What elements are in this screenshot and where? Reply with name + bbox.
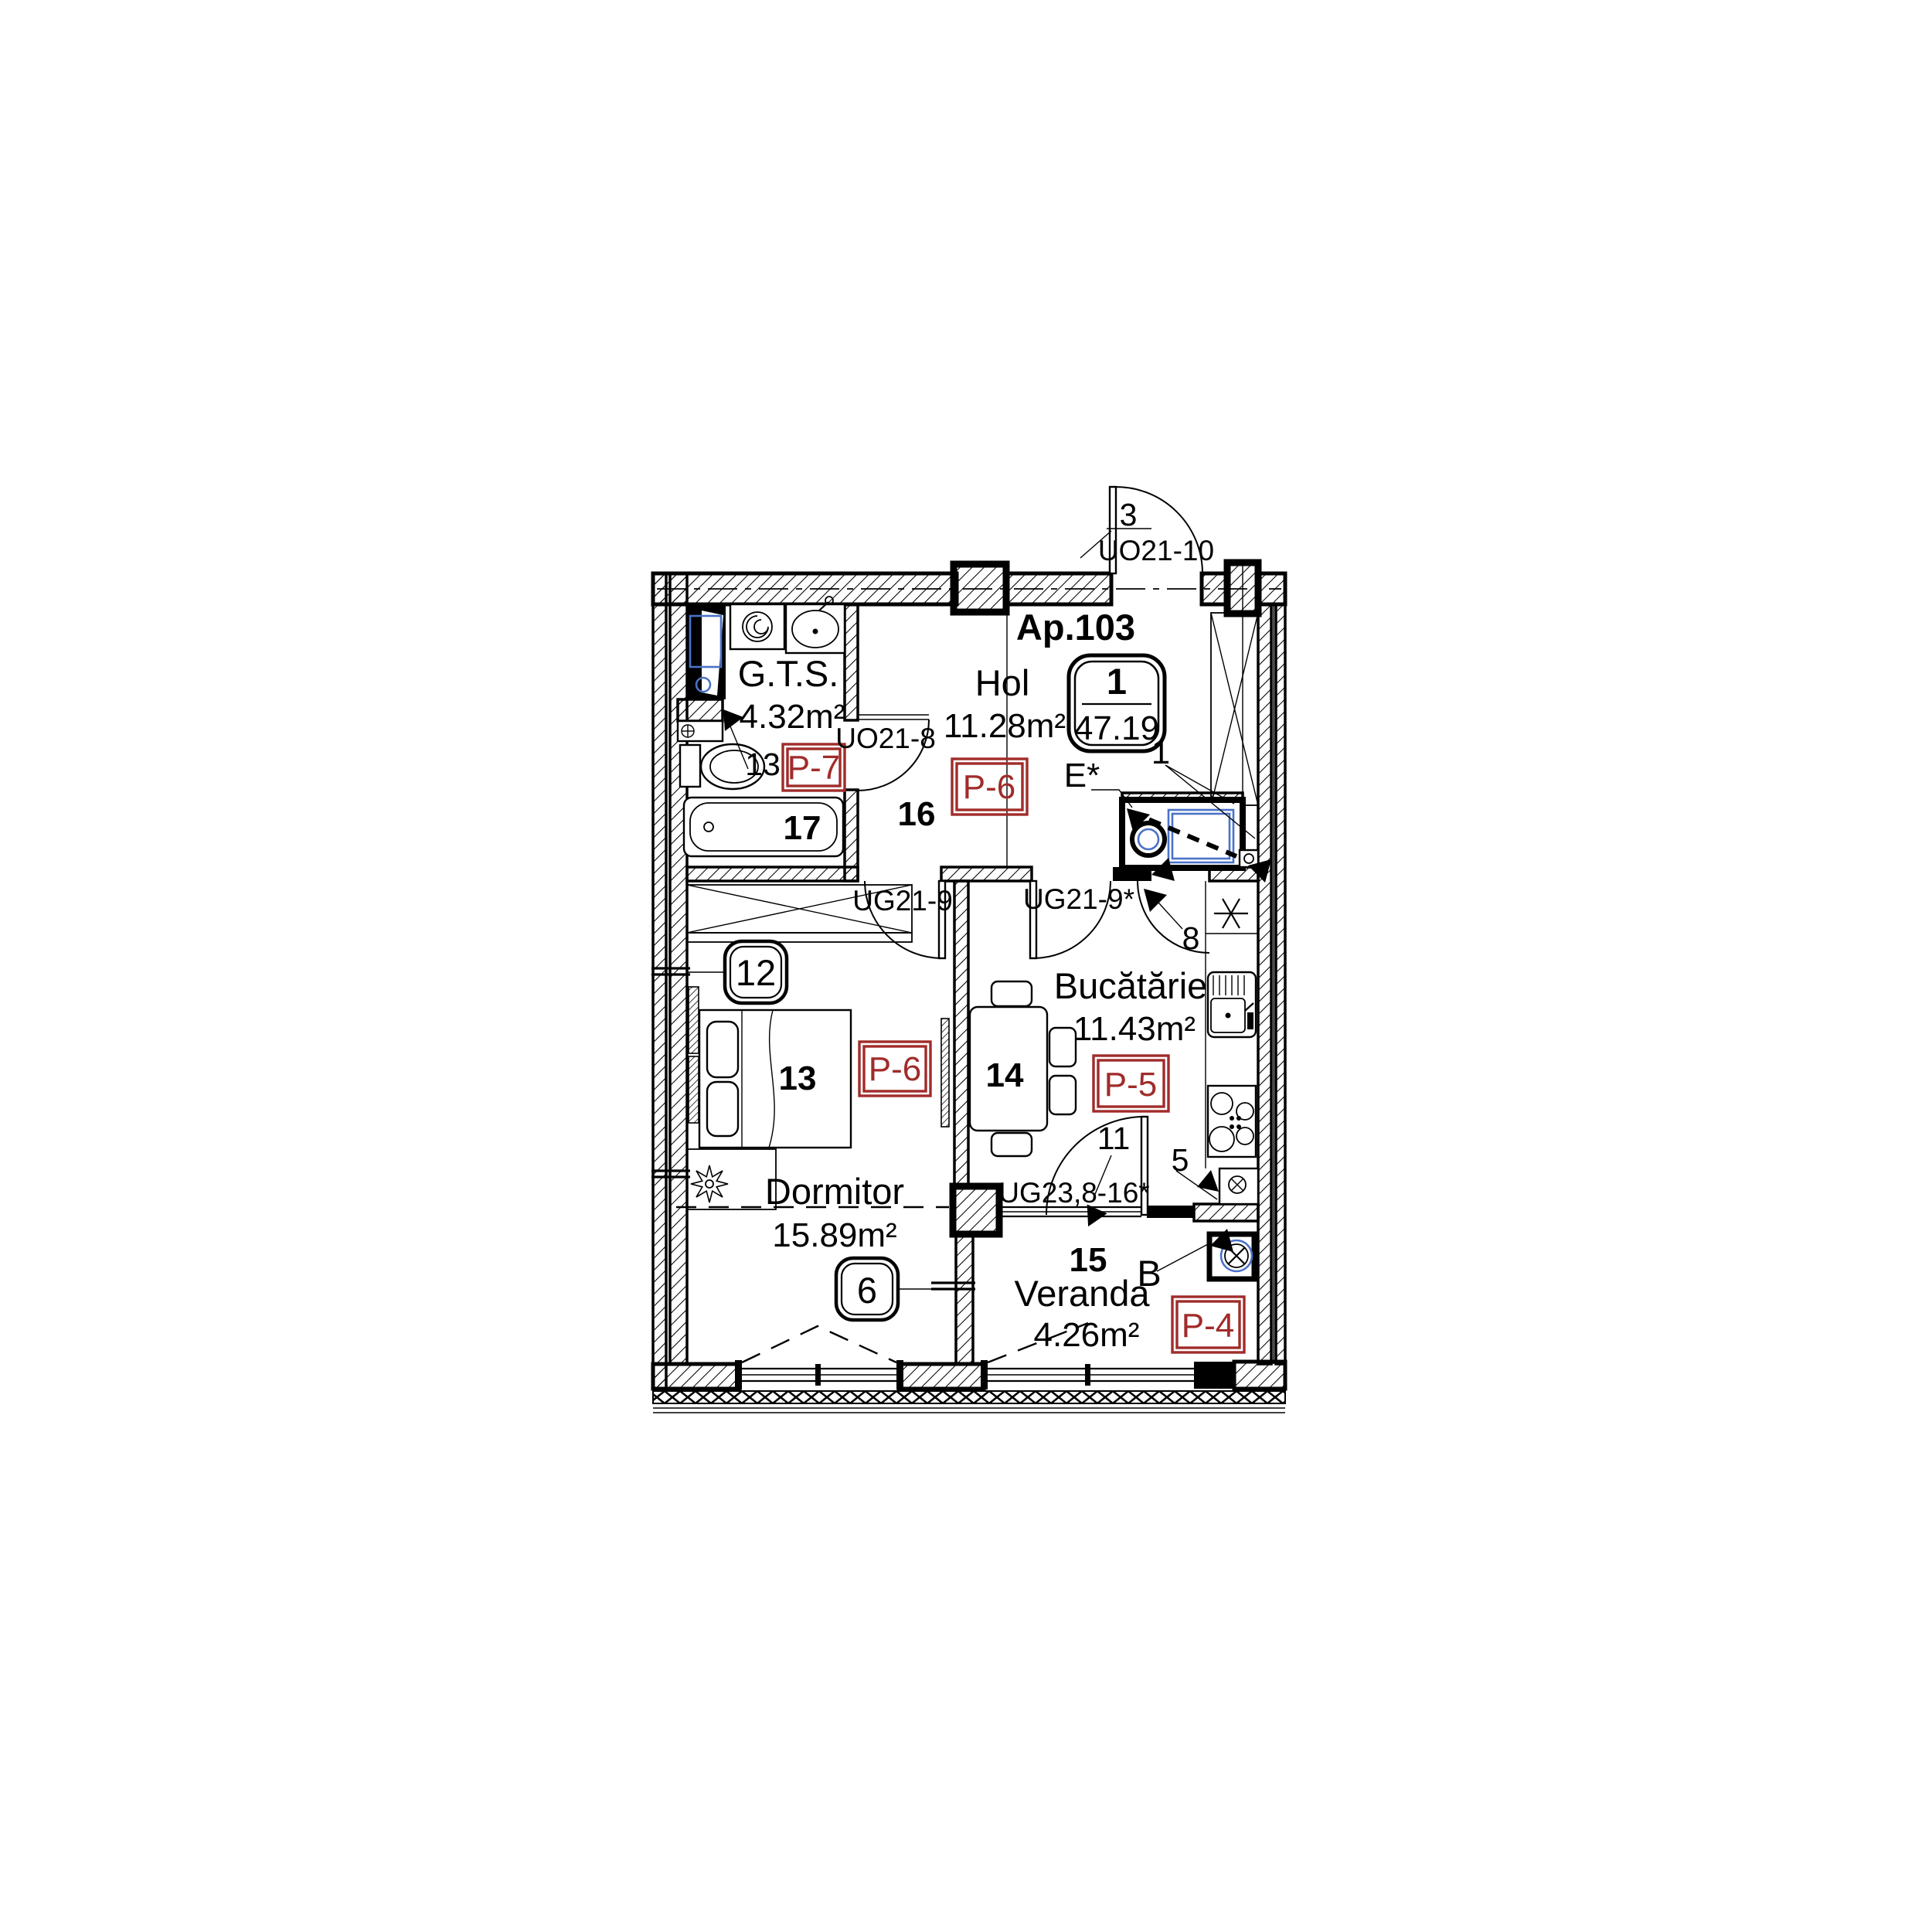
callout-electrical: E* [1064, 757, 1100, 794]
pillow [707, 1082, 738, 1136]
chair [1049, 1028, 1076, 1066]
stove [1208, 1086, 1256, 1157]
pillow [707, 1022, 738, 1077]
finish-code-p6-bedroom: P-6 [869, 1050, 921, 1088]
room-veranda-name: Veranda [1014, 1273, 1150, 1314]
room-bedroom-name: Dormitor [765, 1171, 904, 1212]
opening-kitchen-code: UG21-9* [1023, 883, 1134, 915]
room-bedroom-area: 15.89m² [772, 1216, 896, 1254]
drain-niche [1209, 1229, 1254, 1279]
callout-door-11: 11 [1097, 1121, 1131, 1156]
plant [691, 1165, 728, 1202]
apartment-title: Ap.103 [1016, 607, 1135, 648]
callout-shaft: 13 [745, 747, 781, 782]
floor-plan-canvas: Ap.103 1 47.19 G.T.S. 4.32m² P-7 17 Hol … [0, 0, 1932, 1932]
finish-code-p4: P-4 [1182, 1307, 1234, 1345]
finish-code-p5: P-5 [1104, 1066, 1157, 1104]
headboard-panel [689, 1056, 699, 1123]
room-gts-name: G.T.S. [738, 653, 839, 694]
room-gts-area: 4.32m² [740, 698, 845, 736]
callout-window-6: 6 [857, 1270, 877, 1311]
room-veranda-area: 4.26m² [1034, 1316, 1140, 1354]
room-kitchen-area: 11.43m² [1073, 1010, 1196, 1048]
chair [1049, 1076, 1076, 1114]
washing-machine [730, 604, 784, 649]
floor-plan: Ap.103 1 47.19 G.T.S. 4.32m² P-7 17 Hol … [0, 0, 1932, 1932]
column-top [954, 564, 1006, 612]
chair [992, 981, 1032, 1006]
callout-drain-b: B [1137, 1253, 1161, 1294]
opening-veranda-code: UG23,8-16* [998, 1177, 1149, 1209]
room-hol-area: 11.28m² [944, 707, 1066, 745]
finish-code-p7: P-7 [787, 749, 840, 787]
finish-code-p6-hall: P-6 [963, 768, 1015, 806]
callout-counter-5: 5 [1172, 1142, 1189, 1178]
callout-boiler-1: 1 [1151, 733, 1170, 771]
room-gts-number: 17 [784, 809, 821, 847]
headboard-panel [689, 987, 699, 1053]
callout-entrance-door: 3 [1120, 497, 1138, 532]
callout-kitchen-entry-8: 8 [1182, 920, 1200, 956]
apartment-total-area: 47.19 [1074, 709, 1159, 747]
room-kitchen-number: 14 [986, 1056, 1024, 1094]
radiator [941, 1019, 949, 1127]
room-kitchen-name: Bucătărie [1054, 965, 1208, 1006]
opening-bedroom-code: UG21-9 [852, 885, 953, 917]
opening-entrance-code: UO21-10 [1098, 535, 1214, 566]
kitchen-sink [1208, 972, 1256, 1037]
counter-end-unit [1219, 1168, 1258, 1204]
insulation-strip [653, 1391, 1285, 1403]
pier-kitchen-veranda [953, 1186, 999, 1234]
bed [689, 987, 851, 1148]
sink [786, 597, 845, 653]
room-bedroom-number: 13 [779, 1060, 817, 1097]
room-hol-name: Hol [975, 662, 1030, 703]
apartment-unit-number: 1 [1107, 661, 1127, 702]
chair [992, 1133, 1032, 1156]
veranda-elements [1209, 1229, 1254, 1279]
callout-window-12: 12 [736, 952, 776, 993]
room-hol-number: 16 [898, 795, 936, 833]
opening-bathroom-code: UO21-8 [835, 723, 936, 754]
